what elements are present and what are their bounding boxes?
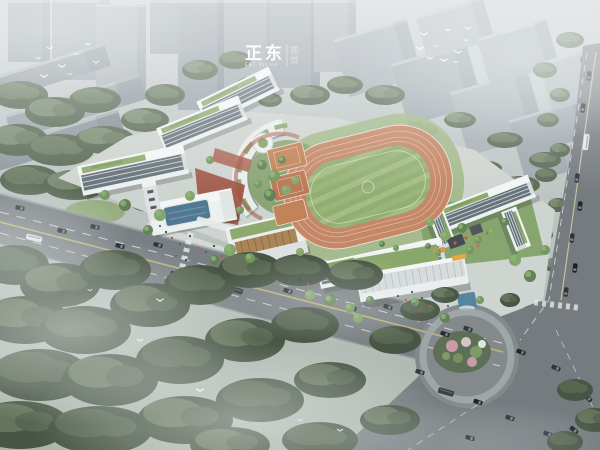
scene-canvas: 正东 EST Vision 视 觉 <box>0 0 600 450</box>
watermark-subtext: EST Vision <box>245 62 279 67</box>
fog-and-mist <box>0 0 600 450</box>
watermark-stacked-char: 觉 <box>290 55 299 66</box>
watermark-stacked-char: 视 <box>290 45 299 56</box>
watermark-primary-text: 正东 <box>245 43 285 64</box>
aerial-rendering-image: 正东 EST Vision 视 觉 <box>0 0 600 450</box>
watermark: 正东 EST Vision 视 觉 <box>245 43 299 67</box>
